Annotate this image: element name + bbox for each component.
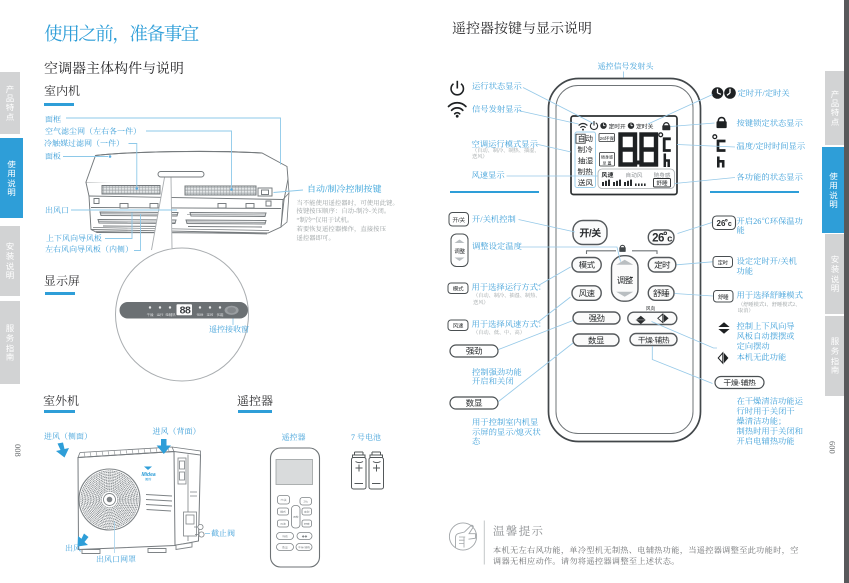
svg-text:强劲: 强劲 (282, 535, 288, 539)
svg-text:干燥: 干燥 (147, 313, 154, 317)
svg-text:制冷: 制冷 (578, 146, 594, 155)
svg-text:舒睡: 舒睡 (718, 294, 729, 301)
svg-text:调整: 调整 (454, 248, 465, 255)
svg-text:定时: 定时 (654, 260, 671, 270)
svg-text:定时关: 定时关 (636, 122, 654, 130)
svg-text:开/关: 开/关 (453, 217, 466, 224)
svg-text:制热: 制热 (578, 167, 594, 176)
svg-text:舒睡: 舒睡 (656, 180, 668, 187)
svg-text:模式: 模式 (280, 510, 286, 514)
svg-text:模式: 模式 (579, 260, 596, 270)
svg-text:送风: 送风 (578, 178, 594, 187)
svg-text:数显: 数显 (588, 336, 605, 346)
svg-text:26: 26 (717, 219, 726, 228)
svg-text:干燥·辅热: 干燥·辅热 (723, 377, 756, 387)
svg-text:化霜: 化霜 (217, 312, 224, 317)
svg-text:抽湿: 抽湿 (578, 157, 594, 166)
svg-text:调整: 调整 (293, 515, 299, 519)
svg-text:88: 88 (180, 305, 191, 317)
svg-text:干燥·辅热: 干燥·辅热 (638, 335, 670, 345)
svg-text:随身感: 随身感 (601, 155, 613, 160)
svg-text:风速: 风速 (602, 172, 614, 179)
svg-text:调整: 调整 (617, 276, 634, 286)
svg-text:定时: 定时 (717, 260, 728, 267)
svg-text:运行: 运行 (157, 312, 164, 317)
svg-text:风速: 风速 (453, 323, 464, 330)
svg-text:c: c (728, 221, 732, 228)
svg-text:◆◆: ◆◆ (302, 535, 308, 539)
svg-text:风速: 风速 (579, 288, 596, 298)
svg-text:模式: 模式 (453, 286, 464, 293)
svg-text:数显: 数显 (466, 398, 483, 408)
svg-text:舒睡: 舒睡 (653, 288, 670, 298)
svg-text:随身感: 随身感 (654, 172, 671, 179)
svg-text:26c: 26c (304, 500, 309, 504)
svg-text:26环保: 26环保 (600, 135, 615, 141)
svg-text:风速: 风速 (280, 522, 286, 526)
svg-text:数显: 数显 (282, 546, 288, 550)
svg-text:开/关: 开/关 (579, 228, 601, 240)
svg-text:定时: 定时 (207, 313, 214, 317)
svg-text:美的: 美的 (145, 478, 151, 482)
svg-text:c: c (667, 234, 672, 245)
svg-text:自动风: 自动风 (626, 172, 643, 179)
svg-text:强劲: 强劲 (588, 314, 604, 324)
svg-text:开/关: 开/关 (280, 498, 287, 502)
svg-text:26: 26 (652, 233, 664, 245)
svg-text:强劲: 强劲 (197, 313, 204, 317)
svg-text:舒睡: 舒睡 (304, 522, 310, 526)
svg-text:电辅热: 电辅热 (165, 313, 176, 317)
svg-text:干燥·辅热: 干燥·辅热 (298, 546, 310, 550)
svg-text:定时开: 定时开 (609, 122, 627, 130)
svg-text:强劲: 强劲 (466, 346, 482, 356)
svg-text:风向: 风向 (646, 305, 656, 312)
svg-text:显 置: 显 置 (602, 161, 611, 166)
svg-text:定时: 定时 (304, 510, 310, 514)
